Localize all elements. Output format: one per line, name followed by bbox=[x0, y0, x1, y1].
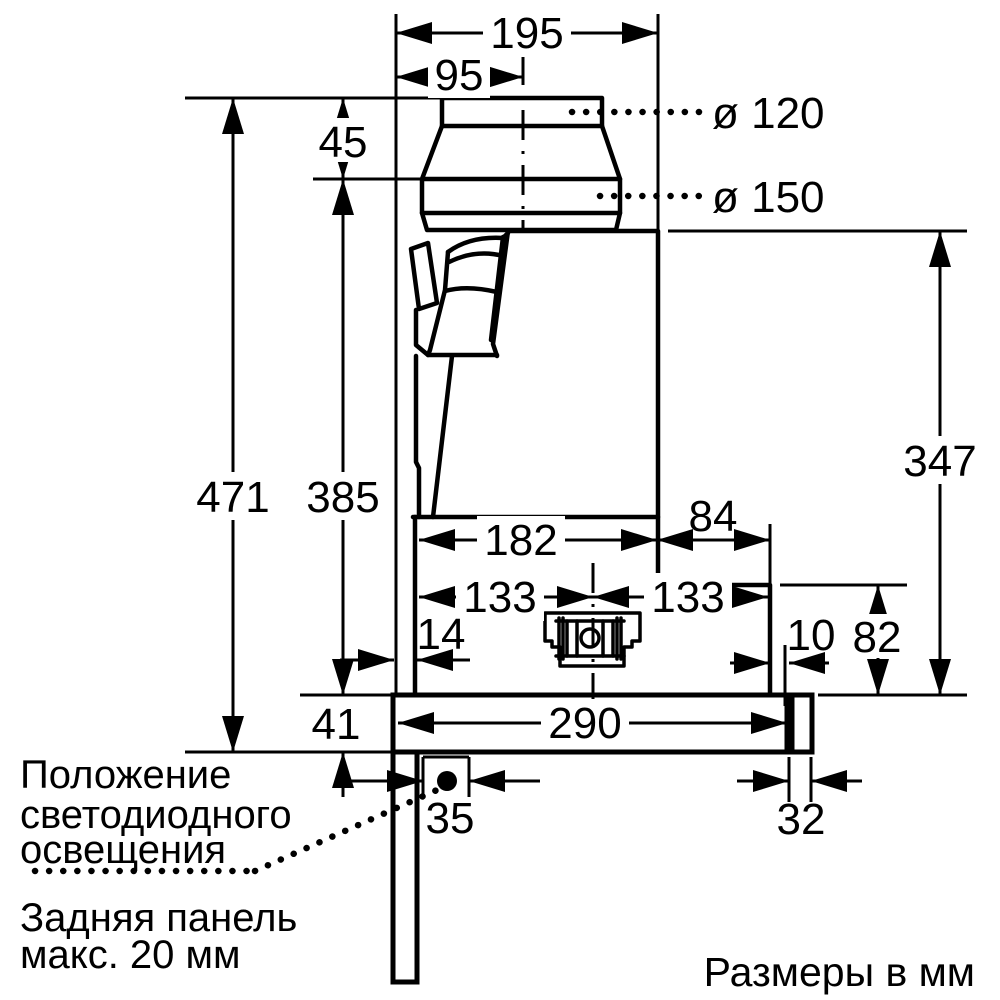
note-back-panel: Задняя панель макс. 20 мм bbox=[20, 896, 297, 977]
dim-rear-edge-32: 32 bbox=[737, 781, 862, 844]
dim-label: 347 bbox=[903, 437, 976, 486]
dim-label: 41 bbox=[312, 700, 361, 749]
dim-label: ø 120 bbox=[712, 89, 825, 138]
dim-overall-height-471: 471 bbox=[189, 98, 277, 752]
note-line: макс. 20 мм bbox=[20, 933, 241, 977]
dim-label: 385 bbox=[306, 473, 379, 522]
dim-label: 14 bbox=[417, 610, 466, 659]
dim-step-gap-10: 10 bbox=[730, 611, 835, 663]
dim-label: 195 bbox=[490, 9, 563, 58]
note-line: освещения bbox=[20, 828, 226, 872]
dim-label: 45 bbox=[319, 118, 368, 167]
dim-label: 32 bbox=[777, 795, 826, 844]
dim-duct-center-offset-95: 95 bbox=[396, 51, 523, 100]
dim-label: 290 bbox=[548, 699, 621, 748]
dim-label: 182 bbox=[484, 516, 557, 565]
back-panel bbox=[393, 752, 417, 982]
dim-rear-step-84: 84 bbox=[657, 492, 770, 541]
dim-label: ø 150 bbox=[712, 173, 825, 222]
dim-led-offset-35: 35 bbox=[345, 781, 540, 843]
extension-lines bbox=[185, 14, 967, 802]
visor-slats bbox=[411, 231, 508, 356]
dim-label: 133 bbox=[651, 573, 724, 622]
note-line: Положение bbox=[20, 753, 231, 797]
note-led-position: Положение светодиодного освещения bbox=[20, 753, 292, 872]
dim-duct-diameter-120: ø 120 bbox=[572, 89, 825, 138]
dimension-drawing: 195 95 45 ø 120 ø 150 471 385 347 182 bbox=[0, 0, 1000, 1000]
dim-label: 84 bbox=[689, 492, 738, 541]
dim-collar-height-45: 45 bbox=[314, 98, 372, 179]
dim-label: 35 bbox=[426, 794, 475, 843]
dim-canopy-depth-290: 290 bbox=[398, 699, 787, 748]
dim-label: 133 bbox=[463, 573, 536, 622]
dim-body-depth-182: 182 bbox=[419, 516, 657, 565]
dim-lower-height-82: 82 bbox=[848, 585, 908, 695]
dim-label: 471 bbox=[196, 473, 269, 522]
dim-duct-diameter-150: ø 150 bbox=[600, 173, 825, 222]
dim-label: 95 bbox=[435, 51, 484, 100]
duct-adapter bbox=[422, 98, 620, 230]
note-units: Размеры в мм bbox=[704, 949, 975, 995]
dim-label: 10 bbox=[787, 611, 836, 660]
dim-back-gap-14: 14 bbox=[340, 610, 470, 660]
dim-body-height-347: 347 bbox=[896, 231, 984, 695]
led-position-marker bbox=[437, 771, 457, 791]
dim-height-to-flange-385: 385 bbox=[299, 179, 387, 695]
dim-label: 82 bbox=[853, 613, 902, 662]
